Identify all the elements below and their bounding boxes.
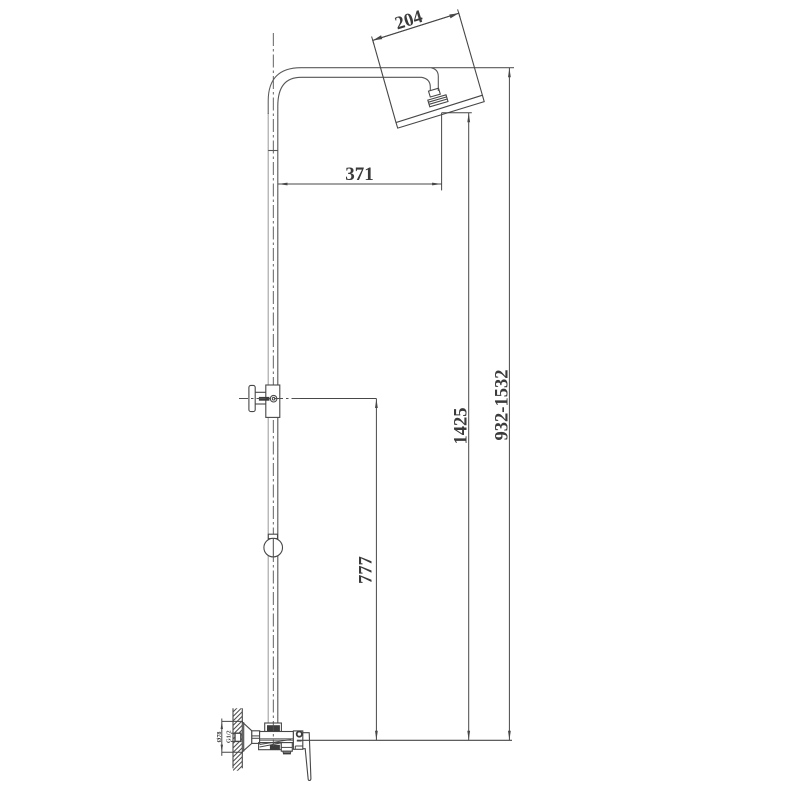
svg-text:371: 371 xyxy=(345,164,374,185)
svg-text:932-1532: 932-1532 xyxy=(493,370,513,441)
svg-text:777: 777 xyxy=(357,556,377,584)
svg-text:Ø78: Ø78 xyxy=(216,731,223,742)
svg-text:1425: 1425 xyxy=(452,408,472,445)
svg-text:204: 204 xyxy=(393,7,425,34)
svg-text:G1/2: G1/2 xyxy=(226,730,233,743)
